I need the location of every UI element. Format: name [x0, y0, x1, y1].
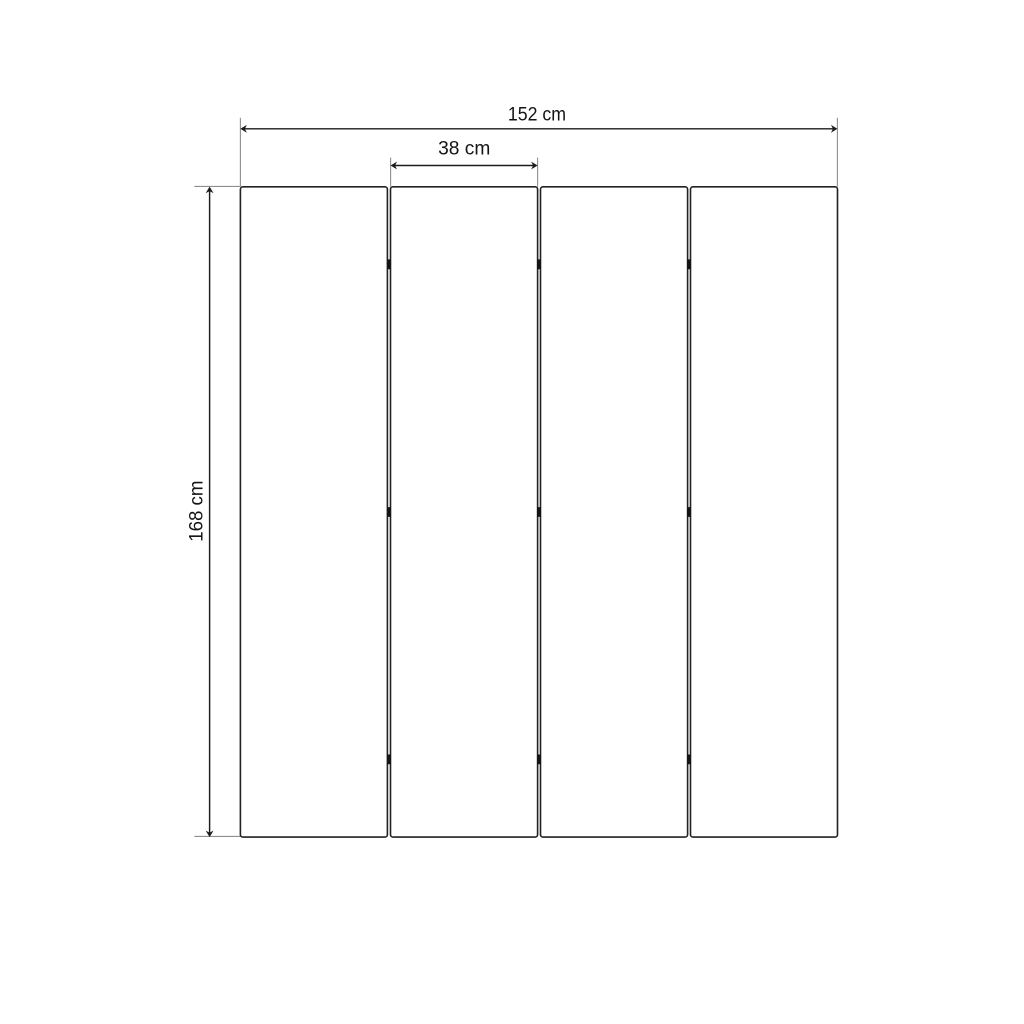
svg-text:168 cm: 168 cm — [187, 481, 208, 542]
svg-text:152 cm: 152 cm — [508, 104, 566, 125]
svg-text:38 cm: 38 cm — [438, 139, 490, 160]
